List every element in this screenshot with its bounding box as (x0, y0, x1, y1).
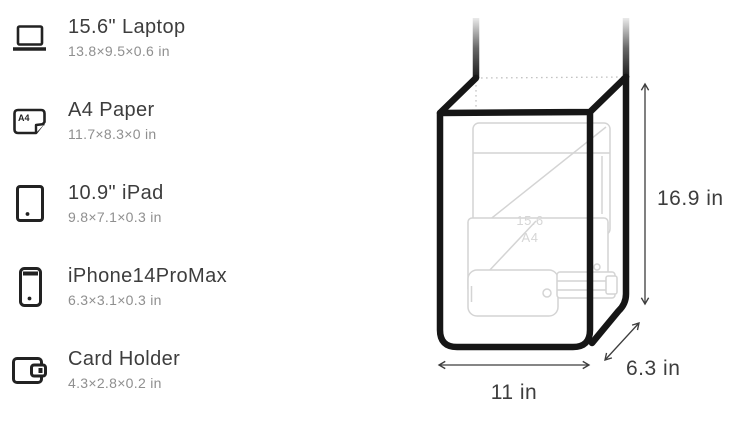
card-holder-icon (8, 346, 52, 394)
inner-a4-label: A4 (522, 230, 539, 245)
item-name: Card Holder (68, 347, 180, 372)
item-name: A4 Paper (68, 98, 157, 123)
item-name: iPhone14ProMax (68, 264, 227, 289)
list-item-laptop: 15.6" Laptop 13.8×9.5×0.6 in (8, 13, 308, 63)
item-dimensions: 6.3×3.1×0.3 in (68, 291, 227, 310)
inner-iphone-outline (468, 270, 558, 316)
item-dimensions: 9.8×7.1×0.3 in (68, 208, 164, 227)
inner-laptop-label: 15.6 (516, 213, 543, 228)
bag-dimension-diagram: 15.6 A4 (420, 0, 750, 426)
width-label: 11 in (491, 381, 537, 404)
laptop-icon (8, 14, 52, 62)
list-item-a4-paper: A4 A4 Paper 11.7×8.3×0 in (8, 96, 308, 146)
bag-straps (476, 18, 626, 78)
item-dimensions: 4.3×2.8×0.2 in (68, 374, 180, 393)
depth-arrow (605, 323, 639, 360)
capacity-list: 15.6" Laptop 13.8×9.5×0.6 in A4 A4 Paper… (8, 13, 308, 428)
ipad-icon (8, 180, 52, 228)
depth-label: 6.3 in (626, 357, 680, 380)
item-dimensions: 11.7×8.3×0 in (68, 125, 157, 144)
list-item-ipad: 10.9" iPad 9.8×7.1×0.3 in (8, 179, 308, 229)
item-name: 10.9" iPad (68, 181, 164, 206)
a4-paper-icon: A4 (8, 97, 52, 145)
list-item-iphone: iPhone14ProMax 6.3×3.1×0.3 in (8, 262, 308, 312)
a4-badge: A4 (18, 113, 30, 123)
item-dimensions: 13.8×9.5×0.6 in (68, 42, 186, 61)
iphone-icon (8, 263, 52, 311)
height-label: 16.9 in (657, 187, 724, 210)
item-name: 15.6" Laptop (68, 15, 186, 40)
bag-top-opening (440, 77, 626, 113)
list-item-card-holder: Card Holder 4.3×2.8×0.2 in (8, 345, 308, 395)
bag-contents-outlines: 15.6 A4 (468, 123, 617, 316)
